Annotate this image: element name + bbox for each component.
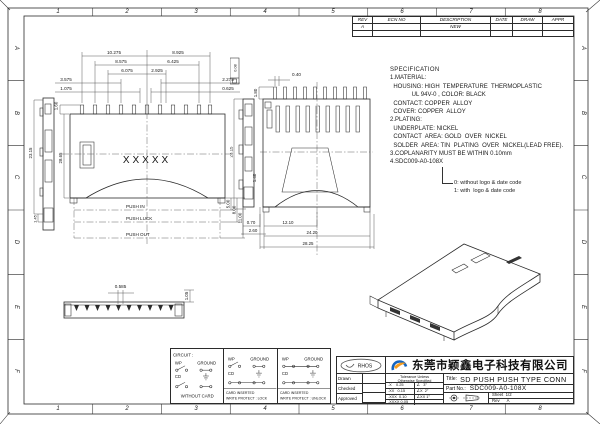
spec-title: SPECIFICATION xyxy=(390,66,572,74)
spec-line: 2.PLATING: xyxy=(390,116,572,124)
rev-header: REV xyxy=(353,16,373,23)
dim-label: 0.585 xyxy=(115,284,127,289)
cd-label: CD xyxy=(282,371,288,376)
spec-line: 3.COPLANARITY MUST BE WITHIN 0.10mm xyxy=(390,150,572,158)
push-luck-label: PUSH LUCK xyxy=(126,216,153,221)
grid-row-label: A xyxy=(578,42,588,54)
ground-label: GROUND xyxy=(251,356,270,361)
ground-symbol-icon xyxy=(203,373,209,380)
grid-col-label: 8 xyxy=(530,8,550,16)
date-header: DATE xyxy=(491,16,513,23)
grid-col-label: 6 xyxy=(392,405,412,413)
rohs-logo: RHOS xyxy=(337,357,386,373)
dim-label: 1.45 xyxy=(33,214,38,223)
tolerance-angle: ∠ 3° xyxy=(415,383,444,388)
spec-line: SOLDER AREA: TIN PLATING OVER NICKEL(LEA… xyxy=(390,142,572,150)
dim-label: 1.80 xyxy=(253,88,258,97)
panel-caption-line2: WRITE PROTECT : UNLOCK xyxy=(280,396,327,400)
terminal-slots xyxy=(390,307,440,331)
dim-label: 1.40 xyxy=(252,173,257,182)
isometric-view-drawing xyxy=(356,220,556,355)
grid-row-label: F xyxy=(578,365,588,377)
wp-label: WP xyxy=(228,356,235,361)
dim-label: 8.925 xyxy=(172,50,184,55)
spec-line: UNDERPLATE: NICKEL xyxy=(390,125,572,133)
grid-col-label: 3 xyxy=(186,405,206,413)
rev-value: A xyxy=(353,23,373,30)
circuit-panel-card-lock: WP GROUND CD CARD INSERTED WRITE PROT xyxy=(223,348,277,404)
tolerance-value: .XXXX 0.05 xyxy=(386,400,415,405)
front-view-drawing: 10.275 8.925 8.575 6.425 6.075 2.925 3.5… xyxy=(50,46,245,281)
tolerance-angle xyxy=(415,400,444,405)
dim-label: 24.20 xyxy=(307,230,319,235)
rohs-text: RHOS xyxy=(358,363,373,369)
latch-slot xyxy=(506,256,522,264)
push-out-label: PUSH OUT xyxy=(126,232,150,237)
grid-row-label: C xyxy=(11,171,21,183)
grid-col-label: 2 xyxy=(117,8,137,16)
tolerance-value: .XXX 0.10 xyxy=(386,395,415,400)
grid-row-label: B xyxy=(11,107,21,119)
panel-caption-line1: CARD INSERTED xyxy=(226,391,255,395)
push-in-label: PUSH IN xyxy=(126,204,145,209)
description-value: NEW xyxy=(421,23,491,30)
approved-signature-cell xyxy=(363,393,385,403)
appr-header: APPR xyxy=(543,16,574,23)
circuit-diagram: CIRCUIT : WP GROUND CD WITHOUT CARD xyxy=(170,348,333,404)
tolerance-value: .X 0.25 xyxy=(386,383,415,388)
checked-label: Checked xyxy=(337,384,362,394)
ground-label: GROUND xyxy=(304,356,323,361)
circuit-title: CIRCUIT : xyxy=(173,353,193,358)
ground-symbol-icon xyxy=(310,370,316,377)
wp-label: WP xyxy=(282,356,289,361)
logo-code-note-1: 1: with logo & date code xyxy=(454,187,515,195)
spec-line: HOUSING: HIGH TEMPERATURE THERMOPLASTIC xyxy=(390,83,572,91)
approved-label: Approved xyxy=(337,394,362,404)
circuit-panel-without-card: CIRCUIT : WP GROUND CD WITHOUT CARD xyxy=(170,348,224,404)
dim-label: 6.425 xyxy=(167,59,179,64)
grid-col-label: 6 xyxy=(392,8,412,16)
dim-label: 2.925 xyxy=(151,68,163,73)
spec-line: CONTACT AREA: GOLD OVER NICKEL xyxy=(390,133,572,141)
ground-symbol-icon xyxy=(256,370,262,377)
dim-label: 8.575 xyxy=(115,59,127,64)
grid-row-label: F xyxy=(11,365,21,377)
cd-label: CD xyxy=(175,374,181,379)
checked-signature-cell xyxy=(363,384,385,394)
ground-label: GROUND xyxy=(197,360,216,365)
ecn-header: ECN NO xyxy=(373,16,421,23)
gdt-flatness-label: 0.08 xyxy=(234,64,238,71)
third-angle-projection-icon xyxy=(444,393,489,403)
spec-line: CONTACT: COPPER ALLOY xyxy=(390,100,572,108)
drawing-title: SD PUSH PUSH TYPE CONN xyxy=(460,375,567,384)
tolerance-angle: ∠XX 1° xyxy=(415,395,444,400)
dim-label: 2.60 xyxy=(249,228,258,233)
grid-col-label: 8 xyxy=(530,405,550,413)
bottom-view-drawing: 0.585 1.05 xyxy=(56,280,198,328)
panel-caption-line2: WRITE PROTECT : LOCK xyxy=(226,396,268,400)
date-value xyxy=(491,23,513,30)
description-header: DESCRIPTION xyxy=(421,16,491,23)
grid-col-label: 7 xyxy=(461,405,481,413)
title-block: RHOS 东莞市颖鑫电子科技有限公司 Drawn Checked Approve… xyxy=(336,356,574,404)
drawn-label: Drawn xyxy=(337,374,362,384)
part-no-label: Part No.: xyxy=(446,386,466,392)
grid-row-label: E xyxy=(578,301,588,313)
grid-col-label: 1 xyxy=(48,8,68,16)
draw-header: DRAW xyxy=(513,16,543,23)
ecn-value xyxy=(373,23,421,30)
appr-value xyxy=(543,23,574,30)
revision-table: REV ECN NO DESCRIPTION DATE DRAW APPR A … xyxy=(352,16,574,37)
dim-label: 3.575 xyxy=(60,77,72,82)
grid-col-label: 5 xyxy=(323,8,343,16)
part-number: SDC009-A0-108X xyxy=(470,385,527,392)
grid-col-label: 4 xyxy=(255,405,275,413)
specification-block: SPECIFICATION 1.MATERIAL: HOUSING: HIGH … xyxy=(390,66,572,206)
grid-col-label: 5 xyxy=(323,405,343,413)
grid-col-label: 1 xyxy=(48,405,68,413)
grid-row-label: D xyxy=(11,236,21,248)
leader-elbow-line xyxy=(442,167,453,184)
spec-line: COVER: COPPER ALLOY xyxy=(390,108,572,116)
circuit-panel-card-unlock: WP GROUND CD CARD INSERTED xyxy=(277,348,331,404)
dim-label: 23.15 xyxy=(230,146,234,158)
grid-col-label: 3 xyxy=(186,8,206,16)
tolerance-value: .XX 0.15 xyxy=(386,389,415,394)
dim-label: 0.40 xyxy=(292,72,301,77)
grid-row-label: C xyxy=(578,171,588,183)
grid-row-label: B xyxy=(578,107,588,119)
draw-value xyxy=(513,23,543,30)
panel-caption: WITHOUT CARD xyxy=(181,393,214,398)
drawn-signature-cell xyxy=(363,374,385,384)
engineering-drawing-sheet: 1 2 3 4 5 6 7 8 1 2 3 4 5 6 7 8 A B C D … xyxy=(0,0,600,424)
spec-line: 4.SDC009-A0-108X xyxy=(390,158,572,166)
company-logo-icon xyxy=(389,358,409,373)
wp-label: WP xyxy=(175,360,182,365)
tolerance-angle: ∠X 2° xyxy=(415,389,444,394)
tolerance-table: Tolerance Unless Otherwise Specified .X … xyxy=(386,374,444,403)
company-name: 东莞市颖鑫电子科技有限公司 xyxy=(412,357,568,373)
spec-line: UL 94V-0 , COLOR: BLACK xyxy=(390,91,572,99)
dim-label: 10.275 xyxy=(107,50,121,55)
dim-label: 1.075 xyxy=(60,86,72,91)
contact-pins xyxy=(74,305,174,311)
dim-label: 12.10 xyxy=(283,220,295,225)
dim-label: 28.25 xyxy=(303,241,315,246)
grid-col-label: 4 xyxy=(255,8,275,16)
spec-line: 1.MATERIAL: xyxy=(390,74,572,82)
grid-col-label: 2 xyxy=(117,405,137,413)
panel-caption-line1: CARD INSERTED xyxy=(280,391,309,395)
dim-label: 1.05 xyxy=(184,291,189,300)
revision-letter: Rev A xyxy=(489,399,573,404)
grid-row-label: D xyxy=(578,236,588,248)
title-label: Title: xyxy=(446,376,457,382)
grid-row-label: A xyxy=(11,42,21,54)
dim-label: 23.15 xyxy=(28,147,33,159)
cd-label: CD xyxy=(228,371,234,376)
side-view-drawing: 23.15 1.45 xyxy=(26,88,62,246)
grid-row-label: E xyxy=(11,301,21,313)
dim-label: 0.70 xyxy=(247,220,256,225)
dim-label: 6.075 xyxy=(121,68,133,73)
grid-col-label: 7 xyxy=(461,8,481,16)
